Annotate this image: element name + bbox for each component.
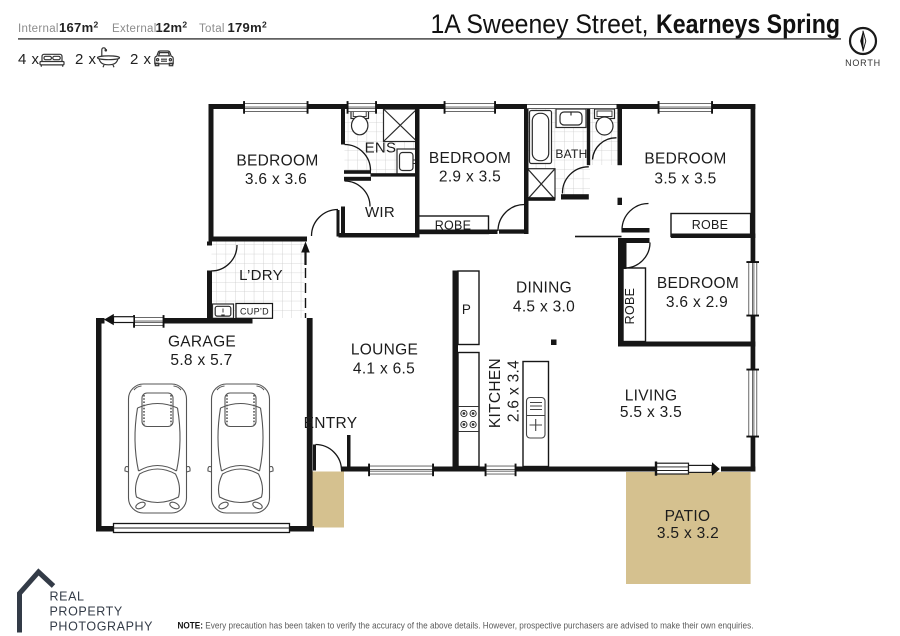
svg-text:4.5 x 3.0: 4.5 x 3.0 <box>513 299 575 316</box>
svg-text:2 x: 2 x <box>75 51 97 68</box>
svg-text:LOUNGE: LOUNGE <box>351 342 418 359</box>
svg-text:PHOTOGRAPHY: PHOTOGRAPHY <box>50 620 154 634</box>
svg-text:NORTH: NORTH <box>845 58 881 68</box>
svg-text:GARAGE: GARAGE <box>168 334 236 351</box>
svg-text:ROBE: ROBE <box>435 219 472 233</box>
svg-text:WIR: WIR <box>365 204 395 221</box>
svg-text:Total: Total <box>199 23 225 35</box>
svg-text:4 x: 4 x <box>18 51 40 68</box>
svg-text:5.8 x 5.7: 5.8 x 5.7 <box>170 352 232 369</box>
svg-text:L’DRY: L’DRY <box>239 267 283 284</box>
svg-text:1A Sweeney Street,: 1A Sweeney Street, <box>431 9 649 39</box>
svg-text:REAL: REAL <box>50 590 85 604</box>
svg-text:CUP’D: CUP’D <box>240 307 269 317</box>
svg-text:2 x: 2 x <box>130 51 152 68</box>
svg-text:3.6 x 2.9: 3.6 x 2.9 <box>666 294 728 311</box>
svg-text:BEDROOM: BEDROOM <box>429 150 511 167</box>
svg-text:3.5 x 3.2: 3.5 x 3.2 <box>657 525 719 542</box>
svg-text:ROBE: ROBE <box>692 218 729 232</box>
svg-text:DINING: DINING <box>516 280 572 297</box>
svg-text:P: P <box>462 302 471 317</box>
svg-text:2.9 x 3.5: 2.9 x 3.5 <box>439 169 501 186</box>
svg-text:Kearneys Spring: Kearneys Spring <box>656 9 840 39</box>
svg-text:167m2: 167m2 <box>59 20 98 36</box>
svg-text:5.5 x 3.5: 5.5 x 3.5 <box>620 404 682 421</box>
svg-text:ENTRY: ENTRY <box>304 415 358 432</box>
svg-text:PROPERTY: PROPERTY <box>50 605 123 619</box>
svg-text:NOTE: Every precaution has bee: NOTE: Every precaution has been taken to… <box>178 621 754 632</box>
svg-text:ROBE: ROBE <box>623 288 637 325</box>
svg-text:ENS: ENS <box>365 140 397 157</box>
svg-text:4.1 x 6.5: 4.1 x 6.5 <box>353 361 415 378</box>
svg-text:BATH: BATH <box>555 147 587 161</box>
svg-text:3.6 x 3.6: 3.6 x 3.6 <box>245 171 307 188</box>
svg-text:179m2: 179m2 <box>228 20 267 36</box>
svg-text:BEDROOM: BEDROOM <box>236 153 318 170</box>
svg-text:KITCHEN: KITCHEN <box>487 358 504 428</box>
svg-text:External: External <box>112 23 157 35</box>
svg-text:BEDROOM: BEDROOM <box>644 151 726 168</box>
svg-text:2.6 x 3.4: 2.6 x 3.4 <box>506 360 523 422</box>
svg-text:Internal: Internal <box>18 23 59 35</box>
svg-text:BEDROOM: BEDROOM <box>657 275 739 292</box>
svg-text:PATIO: PATIO <box>665 508 711 525</box>
svg-text:3.5 x 3.5: 3.5 x 3.5 <box>654 171 716 188</box>
svg-text:LIVING: LIVING <box>625 388 678 405</box>
